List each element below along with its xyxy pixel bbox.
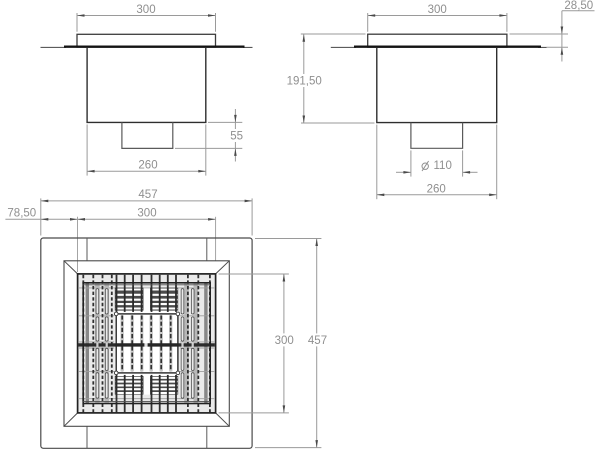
- svg-text:300: 300: [428, 4, 447, 16]
- svg-text:457: 457: [308, 335, 327, 347]
- svg-text:110: 110: [434, 160, 452, 172]
- svg-text:457: 457: [138, 189, 157, 201]
- svg-text:260: 260: [138, 160, 157, 172]
- svg-text:55: 55: [230, 130, 243, 142]
- svg-text:300: 300: [137, 207, 156, 219]
- svg-text:260: 260: [427, 183, 446, 195]
- svg-text:78,50: 78,50: [7, 207, 36, 219]
- svg-text:191,50: 191,50: [287, 75, 322, 87]
- svg-text:300: 300: [275, 335, 294, 347]
- svg-text:300: 300: [136, 4, 155, 16]
